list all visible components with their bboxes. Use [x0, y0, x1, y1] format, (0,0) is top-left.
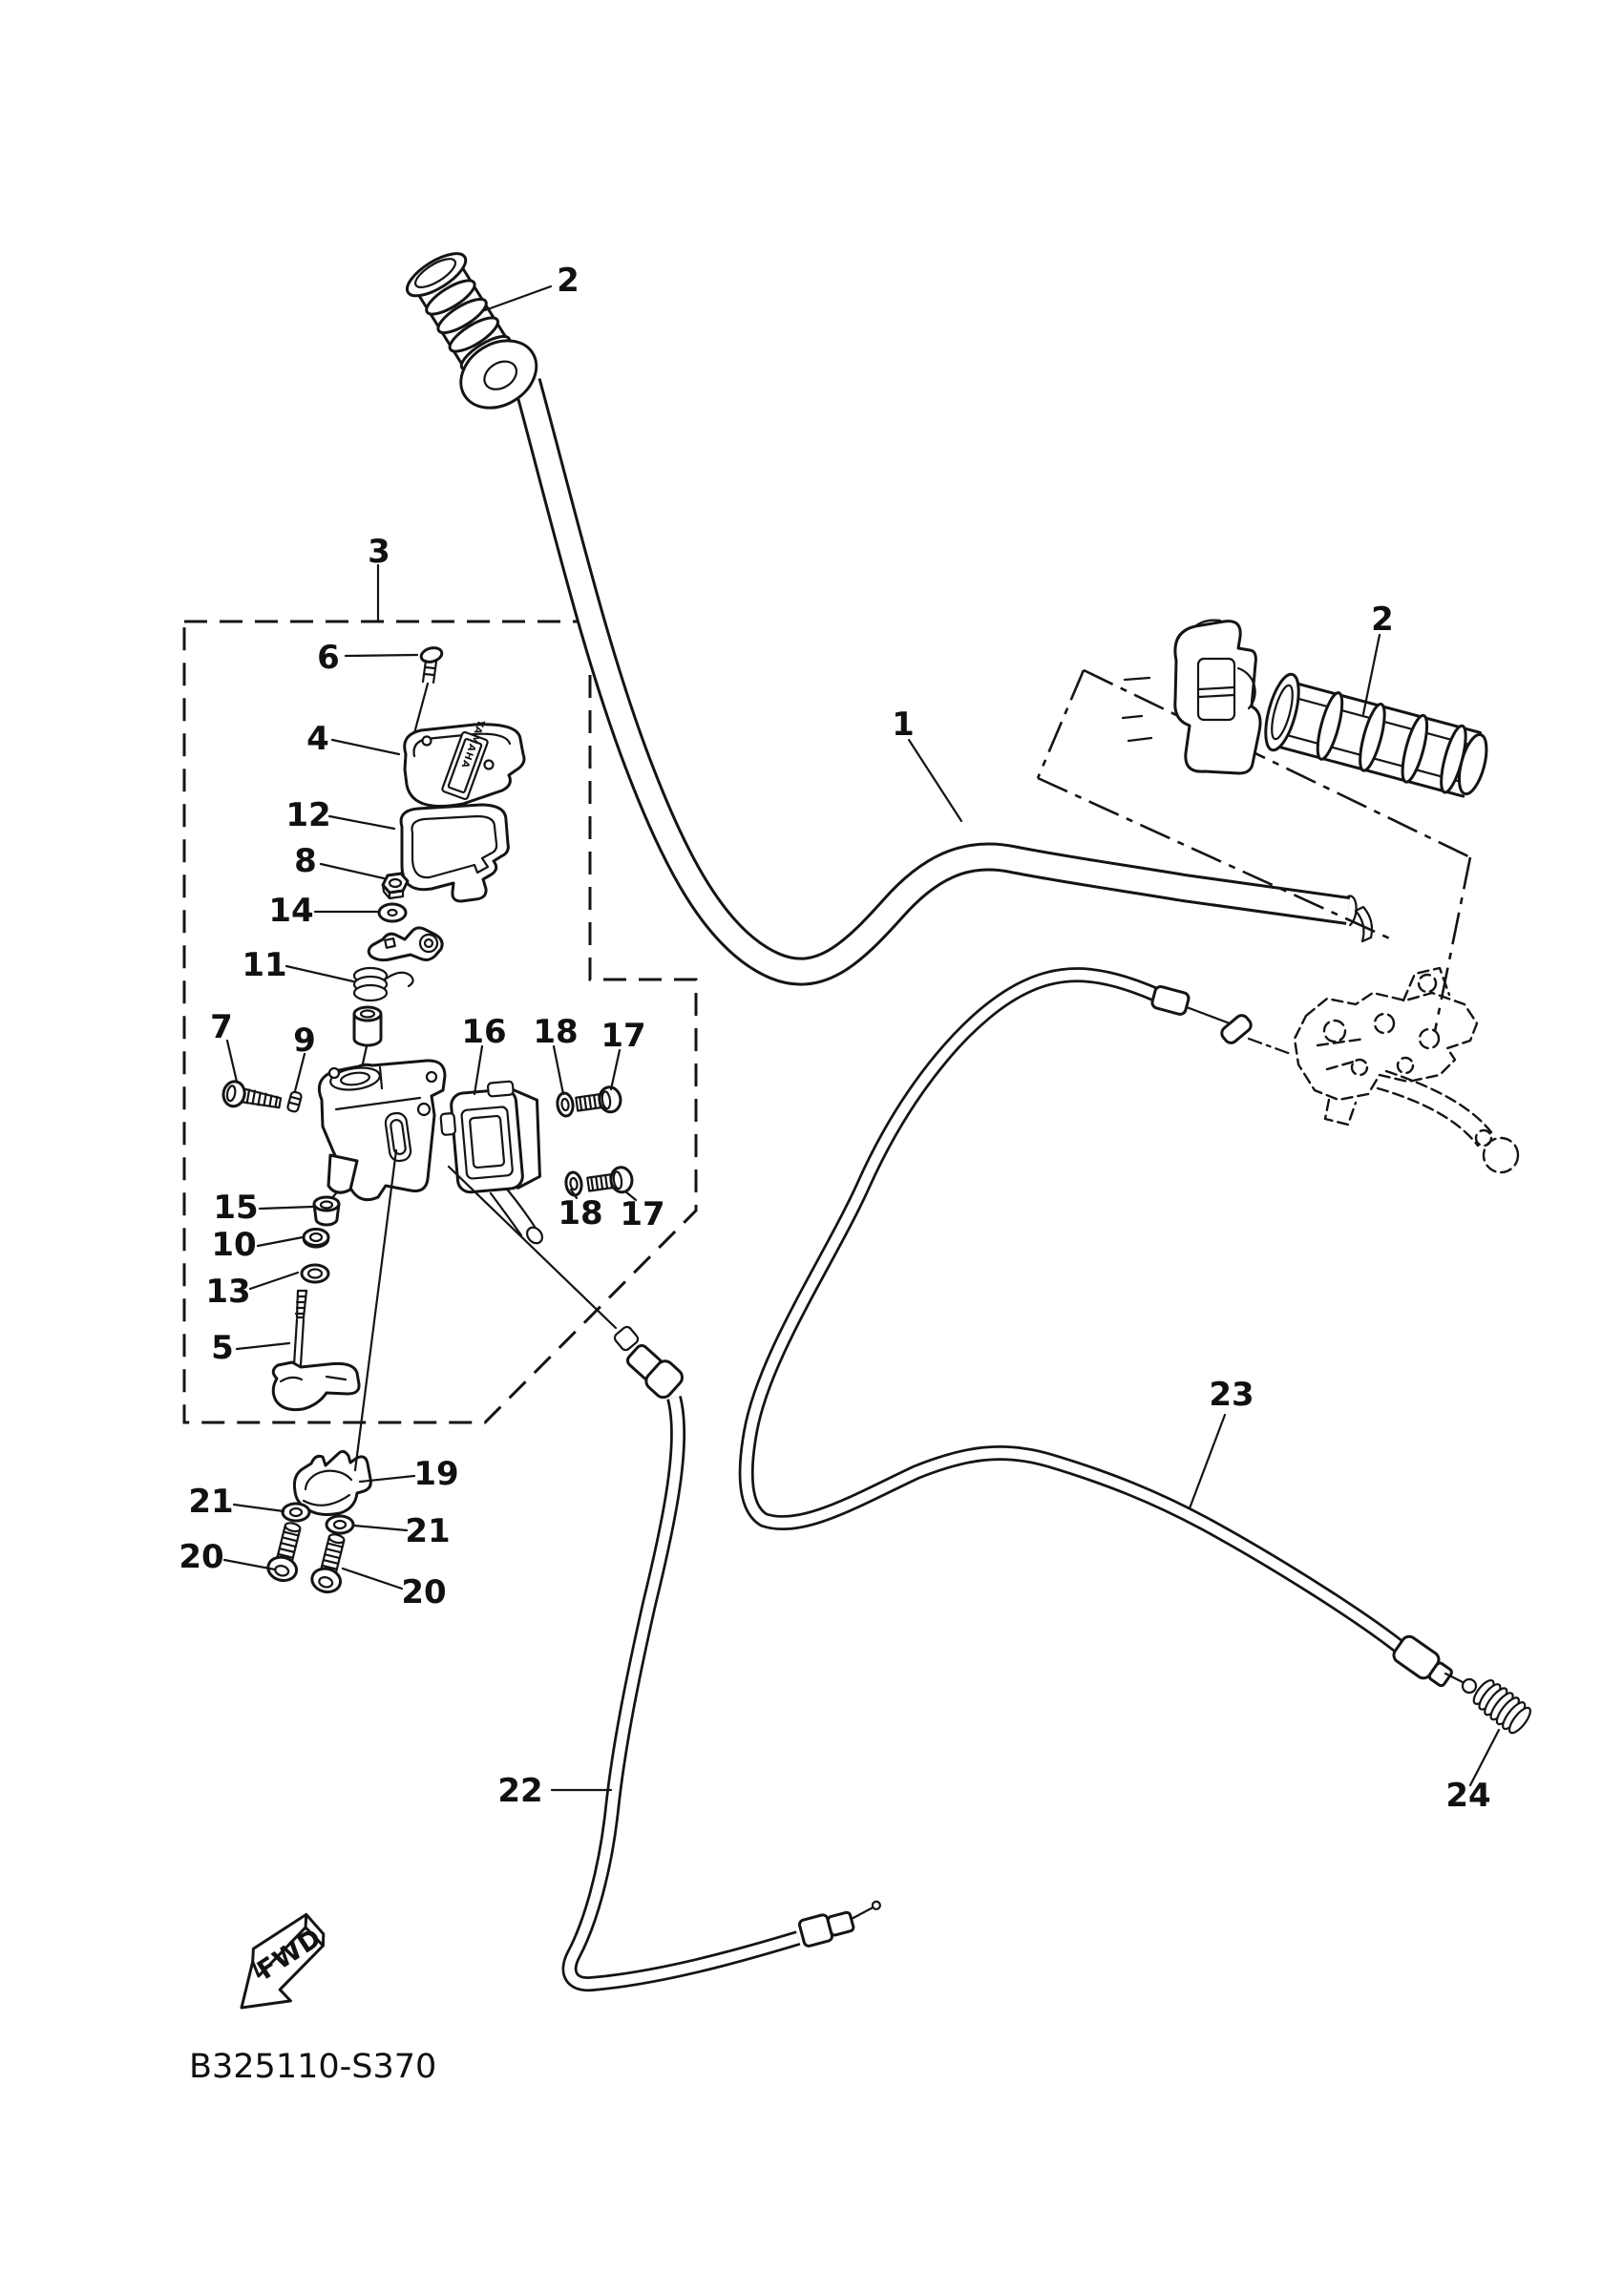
leader-lines [224, 286, 1499, 1790]
screw-17-upper [575, 1085, 622, 1116]
throttle-cable-22 [570, 1325, 886, 1984]
part-label-22-26: 22 [497, 1772, 542, 1810]
cable-23-wire-ball [1463, 1679, 1476, 1693]
part-label-23-27: 23 [1209, 1376, 1254, 1414]
throttle-housing [1175, 621, 1260, 773]
washer-13 [302, 1265, 328, 1282]
pin-9 [287, 1091, 303, 1112]
washer-18-upper [556, 1092, 574, 1117]
part-label-3-3: 3 [368, 533, 390, 571]
parts-diagram-page: YAMAHA [0, 0, 1623, 2296]
part-label-21-25: 21 [405, 1512, 450, 1550]
clamp-bolt-20-right [309, 1531, 351, 1594]
cable-22-end-fitting [798, 1900, 885, 1948]
cap-screw-6 [414, 645, 443, 733]
brake-cable-23 [747, 975, 1535, 1737]
part-label-7-7: 7 [210, 1008, 233, 1046]
exploded-parts-diagram: YAMAHA [0, 0, 1623, 2296]
part-label-17-17: 17 [601, 1017, 645, 1055]
mount-screw-7 [221, 1080, 283, 1114]
part-label-14-14: 14 [268, 892, 313, 930]
nut-8 [383, 874, 408, 898]
part-label-4-4: 4 [306, 720, 329, 758]
cable-23-upper-ferrule [1151, 985, 1191, 1016]
part-label-2-1: 2 [557, 262, 580, 300]
part-label-18-20: 18 [558, 1194, 602, 1232]
part-label-18-19: 18 [533, 1013, 578, 1051]
part-label-2-2: 2 [1371, 600, 1394, 639]
part-label-6-6: 6 [317, 639, 340, 677]
torsion-spring-11 [354, 968, 413, 1001]
fwd-arrow: FWD [218, 1912, 344, 2025]
part-label-10-10: 10 [211, 1226, 256, 1264]
washer-14 [379, 904, 406, 921]
washer-21-left [283, 1504, 309, 1521]
part-label-13-13: 13 [205, 1273, 250, 1311]
cable-23-upper-barrel [1219, 1013, 1254, 1045]
part-label-24-28: 24 [1445, 1777, 1490, 1815]
washer-21-right [327, 1516, 353, 1533]
throttle-lever-5 [273, 1291, 359, 1410]
part-label-19-21: 19 [413, 1455, 458, 1493]
part-label-12-12: 12 [285, 796, 330, 834]
part-label-17-18: 17 [620, 1195, 664, 1233]
return-spring-24 [1469, 1675, 1534, 1737]
part-label-5-5: 5 [211, 1329, 234, 1367]
master-cylinder-cap-4: YAMAHA [405, 714, 524, 806]
part-label-8-8: 8 [294, 842, 317, 880]
diagram-code: B325110-S370 [189, 2048, 436, 2086]
throttle-arm [369, 928, 442, 960]
part-label-21-24: 21 [188, 1483, 233, 1521]
part-label-11-11: 11 [242, 946, 286, 984]
part-label-20-22: 20 [179, 1538, 223, 1576]
diaphragm-gasket-12 [401, 805, 508, 901]
part-label-15-15: 15 [213, 1189, 258, 1227]
clamp-bolt-20-left [265, 1520, 307, 1583]
washer-10 [304, 1230, 328, 1248]
brake-lever-assembly-phantom [1295, 968, 1518, 1172]
master-cylinder-body [319, 1061, 445, 1200]
dust-cup-15 [314, 1197, 339, 1225]
cable-23-lower-ferrule [1391, 1633, 1456, 1691]
cable-22-joint-cone [622, 1339, 685, 1401]
part-label-1-0: 1 [892, 706, 915, 744]
switch-housing-16 [438, 1079, 545, 1246]
handlebar-grip-right [1259, 671, 1494, 805]
part-label-9-9: 9 [293, 1022, 316, 1060]
part-label-20-23: 20 [401, 1573, 446, 1611]
part-label-16-16: 16 [461, 1013, 506, 1051]
